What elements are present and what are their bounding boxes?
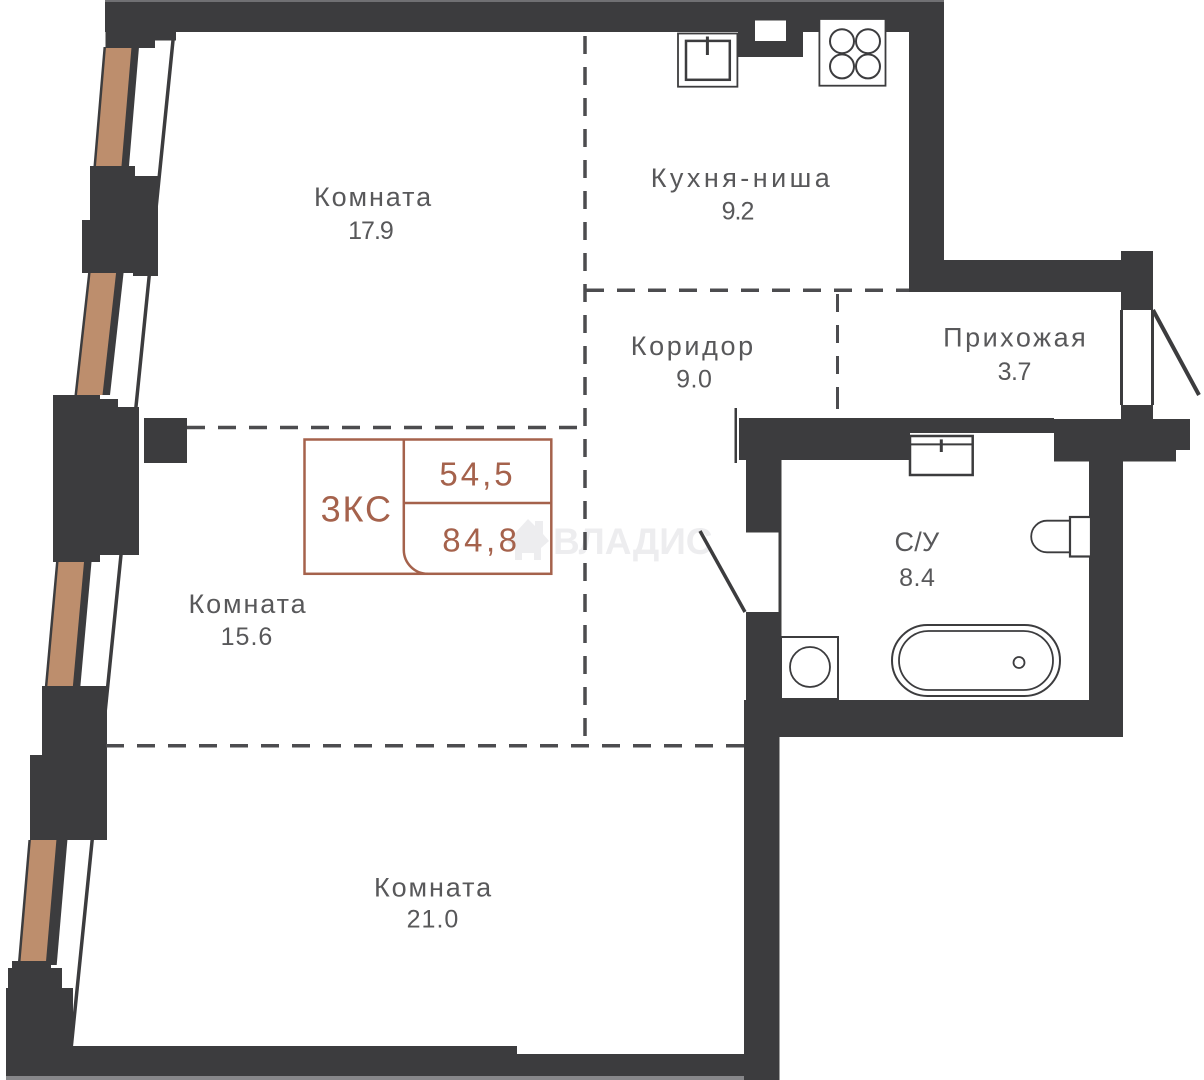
svg-text:Коридор: Коридор [631, 331, 756, 361]
svg-text:17.9: 17.9 [348, 217, 393, 245]
svg-text:Комната: Комната [374, 873, 493, 903]
svg-text:Кухня-ниша: Кухня-ниша [651, 163, 834, 193]
svg-text:21.0: 21.0 [407, 906, 460, 934]
svg-text:54,5: 54,5 [439, 456, 515, 493]
svg-text:Комната: Комната [314, 182, 433, 212]
svg-text:84,8: 84,8 [442, 522, 520, 559]
svg-text:Комната: Комната [188, 589, 307, 619]
svg-text:8.4: 8.4 [899, 564, 935, 592]
svg-text:15.6: 15.6 [221, 623, 274, 651]
svg-text:9.0: 9.0 [676, 366, 712, 394]
svg-text:ВЛАДИС: ВЛАДИС [553, 521, 713, 562]
svg-text:Прихожая: Прихожая [943, 323, 1088, 353]
svg-text:3.7: 3.7 [998, 358, 1031, 386]
svg-text:3КС: 3КС [321, 488, 393, 529]
svg-text:С/У: С/У [895, 527, 941, 557]
svg-text:9.2: 9.2 [722, 198, 754, 226]
